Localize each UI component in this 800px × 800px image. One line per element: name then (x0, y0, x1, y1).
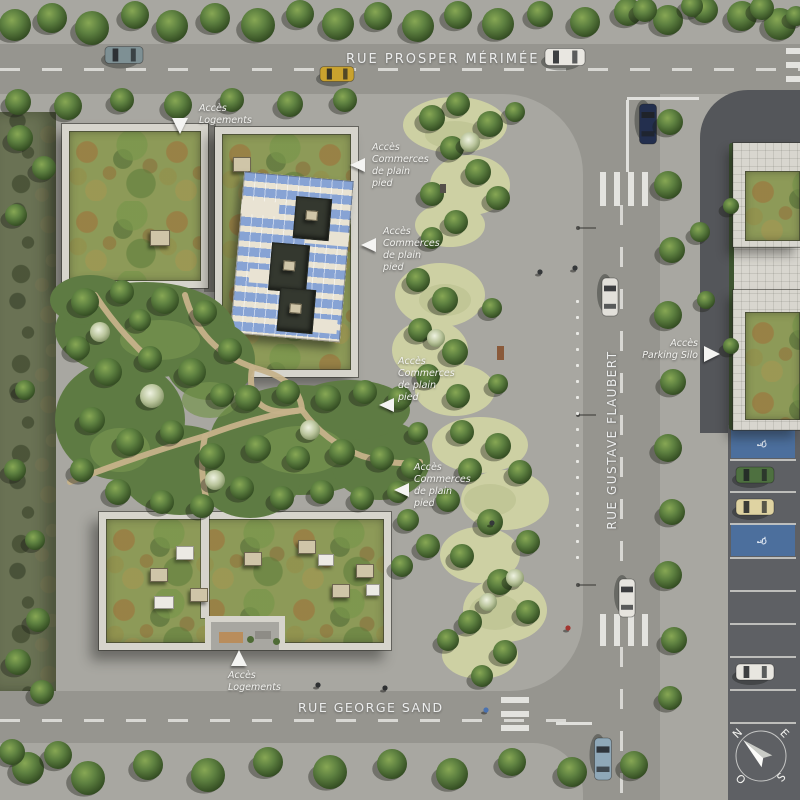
tree (472, 509, 503, 537)
tree (124, 309, 151, 334)
street-label-gustave-flaubert: RUE GUSTAVE FLAUBERT (605, 350, 619, 530)
solar-panel-array (230, 172, 354, 343)
garden-bed (200, 442, 300, 518)
site-plan: ♿ ♿ (0, 0, 800, 800)
garden-bed (55, 282, 235, 378)
compass-rose: N E S O (725, 720, 797, 792)
roof-gap (241, 199, 280, 216)
crosswalk-flaubert-south (600, 614, 656, 646)
arrow-down-icon (172, 118, 188, 134)
tree (372, 749, 407, 781)
tree (392, 509, 419, 534)
tree (460, 159, 491, 187)
terrace-bench (255, 631, 271, 639)
pedestrian (315, 682, 320, 687)
tree (435, 136, 464, 163)
garden-bed (120, 425, 240, 515)
flowering-tree (86, 322, 111, 345)
tree (628, 0, 657, 25)
pedestrian (572, 265, 577, 270)
tree (759, 8, 796, 42)
annotation-acces-logements-bottom: Accès Logements (228, 670, 281, 694)
tree (205, 383, 234, 410)
building-solar-panels (215, 127, 358, 377)
parking-bay-line (730, 590, 796, 592)
tree (503, 460, 532, 487)
tree (305, 480, 334, 507)
rooftop-hvac-unit (283, 260, 296, 271)
paved-gap (733, 247, 800, 290)
tree (159, 91, 192, 121)
tree (32, 3, 67, 35)
pedestrian (537, 269, 542, 274)
tree (427, 287, 458, 315)
tree (128, 750, 163, 782)
tree (66, 288, 99, 318)
stop-line-george-sand (556, 722, 592, 725)
center-line-flaubert-upper (620, 205, 623, 612)
tree (397, 10, 434, 44)
tree (65, 458, 94, 485)
bollard (576, 476, 579, 479)
terrace-planter (273, 638, 280, 645)
street-label-george-sand: RUE GEORGE SAND (298, 700, 444, 715)
roof-skylight (154, 596, 174, 609)
roof-courtyard (268, 242, 310, 293)
arrow-up-icon (231, 650, 247, 666)
tree (133, 346, 162, 373)
bollard (576, 332, 579, 335)
tree (441, 92, 470, 119)
tree (188, 300, 217, 327)
tree (0, 739, 25, 767)
bollard (576, 348, 579, 351)
tree (359, 2, 392, 32)
tree (111, 428, 144, 458)
tree (195, 3, 230, 35)
planted-island (461, 470, 549, 530)
bollard (576, 412, 579, 415)
tree (151, 10, 188, 44)
pedestrian (489, 520, 494, 525)
bollard (576, 444, 579, 447)
parking-bay-line (730, 623, 796, 625)
terrace-planter (247, 636, 254, 643)
parking-bay-line (730, 689, 796, 691)
tree (248, 747, 283, 779)
bollard (576, 556, 579, 559)
sedum-roof (69, 131, 201, 281)
rooftop-hvac-unit (356, 564, 374, 578)
roof-courtyard (293, 196, 333, 241)
street-furniture (440, 184, 596, 587)
wheelchair-icon: ♿ (756, 438, 771, 450)
tree (411, 534, 440, 561)
tree (478, 298, 503, 321)
bench (497, 346, 504, 360)
street-rue-george-sand (0, 691, 583, 743)
bollard (576, 316, 579, 319)
bollard (576, 380, 579, 383)
flowering-tree (456, 132, 481, 155)
tree (345, 486, 374, 513)
compass-west-label: O (733, 772, 749, 788)
bollard (576, 460, 579, 463)
roof-courtyard (276, 287, 316, 334)
crosswalk-george-sand (501, 697, 529, 737)
center-line-top-street (0, 68, 800, 71)
lane-line (626, 100, 629, 172)
tree (348, 380, 377, 407)
arrow-left-icon (361, 238, 376, 252)
tree (0, 9, 31, 43)
bollard (576, 428, 579, 431)
garden-bed (55, 360, 185, 480)
annotation-acces-commerces-2: Accès Commerces de plain pied (383, 226, 440, 275)
tree (281, 446, 310, 473)
garden-path (202, 436, 208, 505)
handicap-parking-bay: ♿ (731, 429, 795, 458)
annotation-acces-logements-top: Accès Logements (199, 103, 252, 127)
rooftop-hvac-unit (150, 230, 170, 246)
tree (271, 380, 300, 407)
pedestrian (382, 685, 387, 690)
parking-bay-line (730, 491, 796, 493)
parking-silo-building-south (733, 290, 800, 430)
compass-south-label: S (774, 770, 788, 784)
roof-skylight (318, 554, 334, 566)
tree (565, 7, 600, 39)
rooftop-hvac-unit (332, 584, 350, 598)
stop-line-top (627, 97, 699, 100)
rooftop-hvac-unit (289, 303, 302, 314)
tree (281, 0, 314, 30)
rooftop-hvac-unit (244, 552, 262, 566)
bollard (576, 524, 579, 527)
center-line-flaubert-lower (620, 647, 623, 800)
tree (116, 1, 149, 31)
building-green-roof-nw (62, 124, 208, 288)
street-label-prosper-merimee: RUE PROSPER MÉRIMÉE (346, 52, 539, 67)
rooftop-hvac-unit (150, 568, 168, 582)
bollard (576, 492, 579, 495)
flowering-tree (296, 420, 321, 443)
tree (240, 435, 271, 463)
tree (453, 610, 482, 637)
tree (484, 374, 509, 397)
tree (782, 6, 800, 29)
compass-east-label: E (777, 726, 791, 740)
tree (74, 407, 105, 435)
roof-skylight (176, 546, 194, 560)
tree (100, 479, 131, 507)
tree (155, 420, 184, 447)
tree (324, 439, 355, 467)
tree (432, 629, 459, 654)
parking-silo-building-north (733, 143, 800, 247)
tree (308, 755, 347, 791)
tree (89, 358, 122, 388)
annotation-acces-parking-silo: Accès Parking Silo (622, 338, 698, 362)
tree (414, 105, 445, 133)
parking-bay-line (730, 523, 796, 525)
tree (186, 758, 225, 794)
tree (687, 0, 718, 25)
arrow-left-icon (394, 483, 409, 497)
tree (272, 91, 303, 119)
tree (656, 627, 687, 655)
wild-vegetation-strip (0, 112, 56, 692)
arrow-left-icon (350, 158, 365, 172)
tree (609, 0, 642, 28)
center-line-george-sand (0, 719, 570, 722)
tree (146, 286, 179, 316)
bollard (576, 300, 579, 303)
bollard (576, 508, 579, 511)
bollard (576, 396, 579, 399)
bollard (576, 540, 579, 543)
roof-parapet-divider (201, 516, 209, 618)
arrow-left-icon (379, 398, 394, 412)
tree (481, 186, 510, 213)
tree (511, 530, 540, 557)
tree (310, 385, 341, 413)
bollard (576, 364, 579, 367)
parking-access-entry (700, 90, 800, 147)
flowering-tree (423, 329, 445, 350)
garden-path (95, 295, 148, 358)
planted-island (430, 155, 510, 215)
tree (480, 433, 511, 461)
tree (439, 1, 472, 31)
parking-bay-line (730, 656, 796, 658)
tree (477, 8, 514, 42)
tree (7, 752, 44, 786)
tree (39, 741, 72, 771)
tree (439, 210, 468, 237)
tree (445, 420, 474, 447)
annotation-acces-commerces-1: Accès Commerces de plain pied (372, 142, 429, 191)
handicap-parking-bay: ♿ (731, 524, 795, 556)
terrace-table (219, 632, 243, 643)
roof-terrace-notch (205, 616, 285, 650)
tree (265, 486, 294, 513)
tree (676, 0, 703, 20)
rooftop-hvac-unit (233, 157, 251, 172)
tree (365, 446, 394, 473)
crosswalk-top-east (786, 48, 800, 90)
wheelchair-icon: ♿ (756, 534, 771, 546)
tree (745, 0, 774, 23)
tree (522, 1, 553, 29)
tree (61, 336, 90, 363)
tree (472, 111, 503, 139)
garden-path (302, 410, 420, 463)
tree (230, 385, 261, 413)
tree (445, 544, 474, 571)
tree (466, 665, 493, 690)
tree (722, 1, 757, 33)
tree (648, 5, 683, 37)
parking-bay-line (730, 557, 796, 559)
tree (236, 8, 275, 44)
tree (482, 569, 513, 597)
crosswalk-flaubert-north (600, 172, 656, 206)
roof-skylight (366, 584, 380, 596)
bench (440, 184, 446, 193)
parking-bay-line (730, 459, 796, 461)
flowering-tree (502, 569, 524, 590)
building-green-roof-south (99, 512, 391, 650)
arrow-right-icon (704, 346, 720, 362)
tree (403, 318, 432, 345)
tree (225, 476, 254, 503)
rooftop-hvac-unit (298, 540, 316, 554)
garden-path (70, 410, 302, 482)
tree (493, 748, 526, 778)
rooftop-hvac-unit (190, 588, 208, 602)
tree (173, 358, 206, 388)
flowering-tree (475, 593, 497, 614)
flowering-tree (135, 384, 164, 411)
garden-bed (210, 385, 390, 495)
planted-island (440, 527, 520, 583)
annotation-acces-commerces-3: Accès Commerces de plain pied (398, 356, 455, 405)
tree (404, 422, 429, 445)
tree (317, 8, 354, 42)
tree (431, 758, 468, 792)
tree (66, 761, 105, 797)
tree (70, 11, 109, 47)
sedum-roof (745, 312, 800, 420)
sedum-roof (745, 171, 800, 241)
tree (194, 443, 225, 471)
flowering-tree (201, 470, 226, 493)
rooftop-hvac-unit (305, 210, 318, 221)
annotation-acces-commerces-4: Accès Commerces de plain pied (414, 462, 471, 511)
